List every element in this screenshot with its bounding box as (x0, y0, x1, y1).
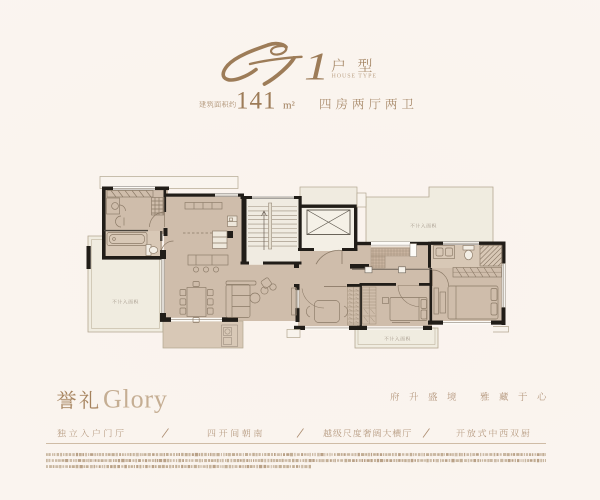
svg-text:1: 1 (304, 45, 329, 88)
svg-text:141: 141 (236, 88, 277, 115)
svg-text:Glory: Glory (103, 385, 168, 414)
svg-text:HOUSE TYPE: HOUSE TYPE (332, 74, 377, 80)
svg-text:m²: m² (283, 100, 296, 112)
